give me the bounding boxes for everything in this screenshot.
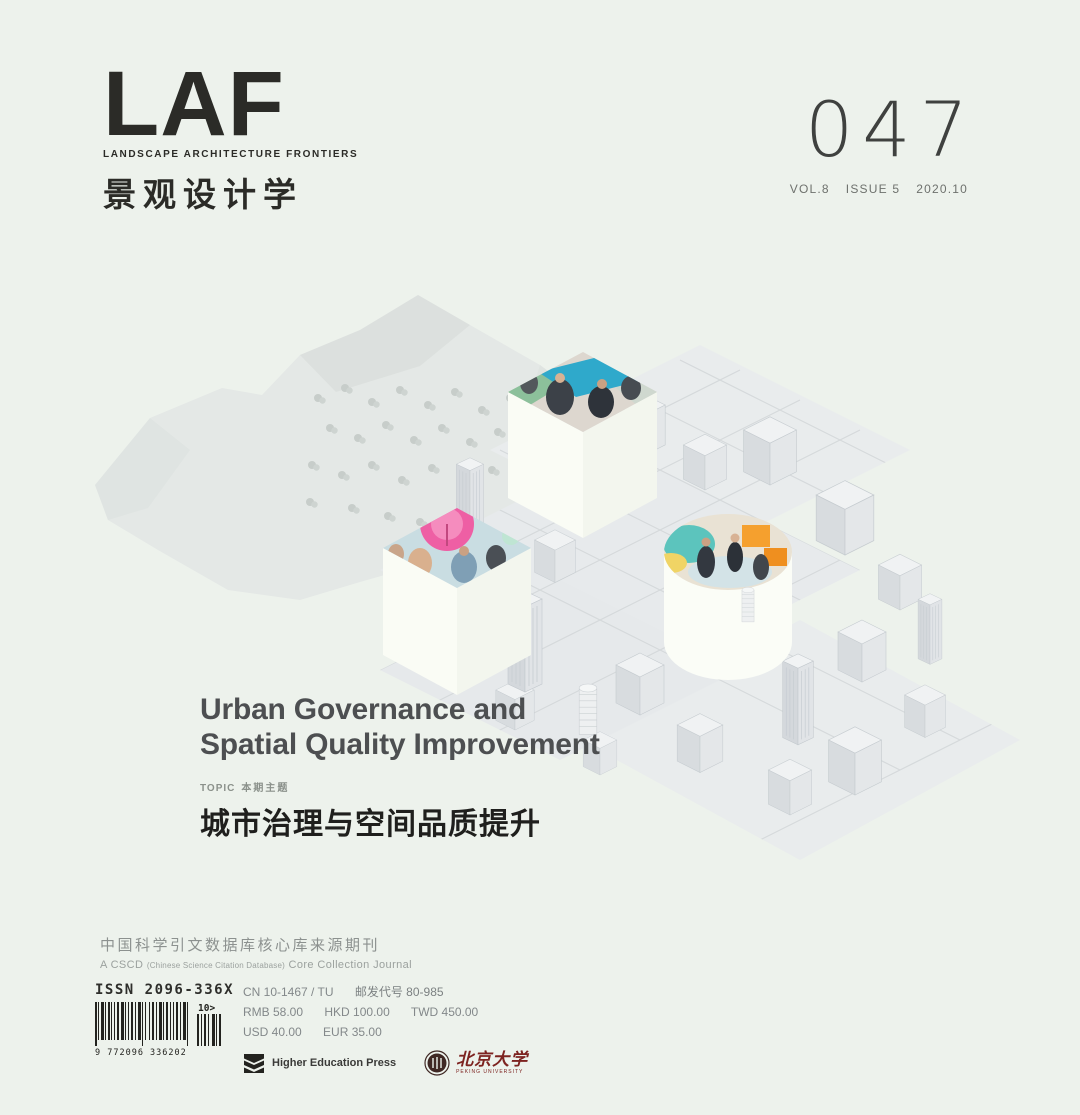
hep-publisher-name: Higher Education Press bbox=[272, 1053, 396, 1073]
price-hkd: HKD 100.00 bbox=[324, 1005, 389, 1019]
masthead-logo-block: LAF LANDSCAPE ARCHITECTURE FRONTIERS 景观设… bbox=[103, 62, 358, 216]
laf-logo: LAF bbox=[103, 62, 358, 147]
barcode-digits: 9 772096 336202 bbox=[95, 1048, 187, 1058]
magazine-cover: LAF LANDSCAPE ARCHITECTURE FRONTIERS 景观设… bbox=[0, 0, 1080, 1115]
cscd-en-suffix: Core Collection Journal bbox=[288, 959, 412, 971]
price-eur: EUR 35.00 bbox=[323, 1025, 382, 1039]
issue-label: ISSUE 5 bbox=[846, 182, 900, 196]
issn-column: ISSN 2096-336X bbox=[95, 982, 235, 1076]
cscd-en-paren: (Chinese Science Citation Database) bbox=[147, 961, 285, 970]
barcode-addon-bars bbox=[197, 1014, 221, 1046]
pku-seal-icon bbox=[424, 1050, 450, 1076]
title-en-line1: Urban Governance and bbox=[200, 692, 600, 727]
price-row-1: RMB 58.00 HKD 100.00 TWD 450.00 bbox=[243, 1002, 528, 1022]
date-label: 2020.10 bbox=[916, 182, 968, 196]
topic-label-cn: 本期主题 bbox=[241, 783, 289, 794]
feature-title-cn: 城市治理与空间品质提升 bbox=[200, 799, 600, 843]
publishers-row: Higher Education Press 北京大学 PEKING UNIVE… bbox=[243, 1050, 528, 1076]
registration-row: CN 10-1467 / TU 邮发代号 80-985 bbox=[243, 982, 528, 1002]
logo-chinese-name: 景观设计学 bbox=[103, 168, 358, 216]
topic-label-en: TOPIC bbox=[200, 783, 235, 794]
photo-cutout-cylinder bbox=[655, 512, 800, 680]
hep-publisher: Higher Education Press bbox=[243, 1053, 396, 1074]
postal-code: 邮发代号 80-985 bbox=[355, 985, 444, 999]
price-twd: TWD 450.00 bbox=[411, 1005, 478, 1019]
topic-label: TOPIC本期主题 bbox=[200, 779, 600, 794]
imprint-info-column: CN 10-1467 / TU 邮发代号 80-985 RMB 58.00 HK… bbox=[243, 982, 528, 1076]
pku-name-en: PEKING UNIVERSITY bbox=[456, 1070, 528, 1075]
issue-meta: VOL.8ISSUE 52020.10 bbox=[790, 182, 968, 196]
barcode: 9 772096 336202 10> bbox=[95, 1002, 235, 1065]
pku-name-cn: 北京大学 bbox=[456, 1051, 528, 1068]
price-usd: USD 40.00 bbox=[243, 1025, 302, 1039]
accreditation-block: 中国科学引文数据库核心库来源期刊 A CSCD (Chinese Science… bbox=[100, 934, 412, 971]
cscd-en-prefix: A CSCD bbox=[100, 959, 143, 971]
price-rmb: RMB 58.00 bbox=[243, 1005, 303, 1019]
logo-tagline: LANDSCAPE ARCHITECTURE FRONTIERS bbox=[103, 149, 358, 160]
feature-title-en: Urban Governance and Spatial Quality Imp… bbox=[200, 692, 600, 763]
issue-number: 047 bbox=[790, 92, 977, 168]
imprint-block: ISSN 2096-336X bbox=[95, 982, 528, 1076]
price-row-2: USD 40.00 EUR 35.00 bbox=[243, 1022, 528, 1042]
cscd-line-cn: 中国科学引文数据库核心库来源期刊 bbox=[100, 934, 412, 955]
issn-number: ISSN 2096-336X bbox=[95, 982, 235, 998]
pku-names: 北京大学 PEKING UNIVERSITY bbox=[456, 1051, 528, 1075]
title-en-line2: Spatial Quality Improvement bbox=[200, 727, 600, 762]
issue-block: 047 VOL.8ISSUE 52020.10 bbox=[790, 92, 968, 196]
pku-publisher: 北京大学 PEKING UNIVERSITY bbox=[424, 1050, 528, 1076]
hep-logo-icon bbox=[243, 1053, 265, 1074]
cn-code: CN 10-1467 / TU bbox=[243, 985, 334, 999]
cscd-line-en: A CSCD (Chinese Science Citation Databas… bbox=[100, 959, 412, 971]
feature-title-block: Urban Governance and Spatial Quality Imp… bbox=[200, 692, 600, 843]
volume-label: VOL.8 bbox=[790, 182, 830, 196]
barcode-addon-label: 10> bbox=[198, 1003, 215, 1014]
barcode-bars bbox=[95, 1002, 188, 1046]
